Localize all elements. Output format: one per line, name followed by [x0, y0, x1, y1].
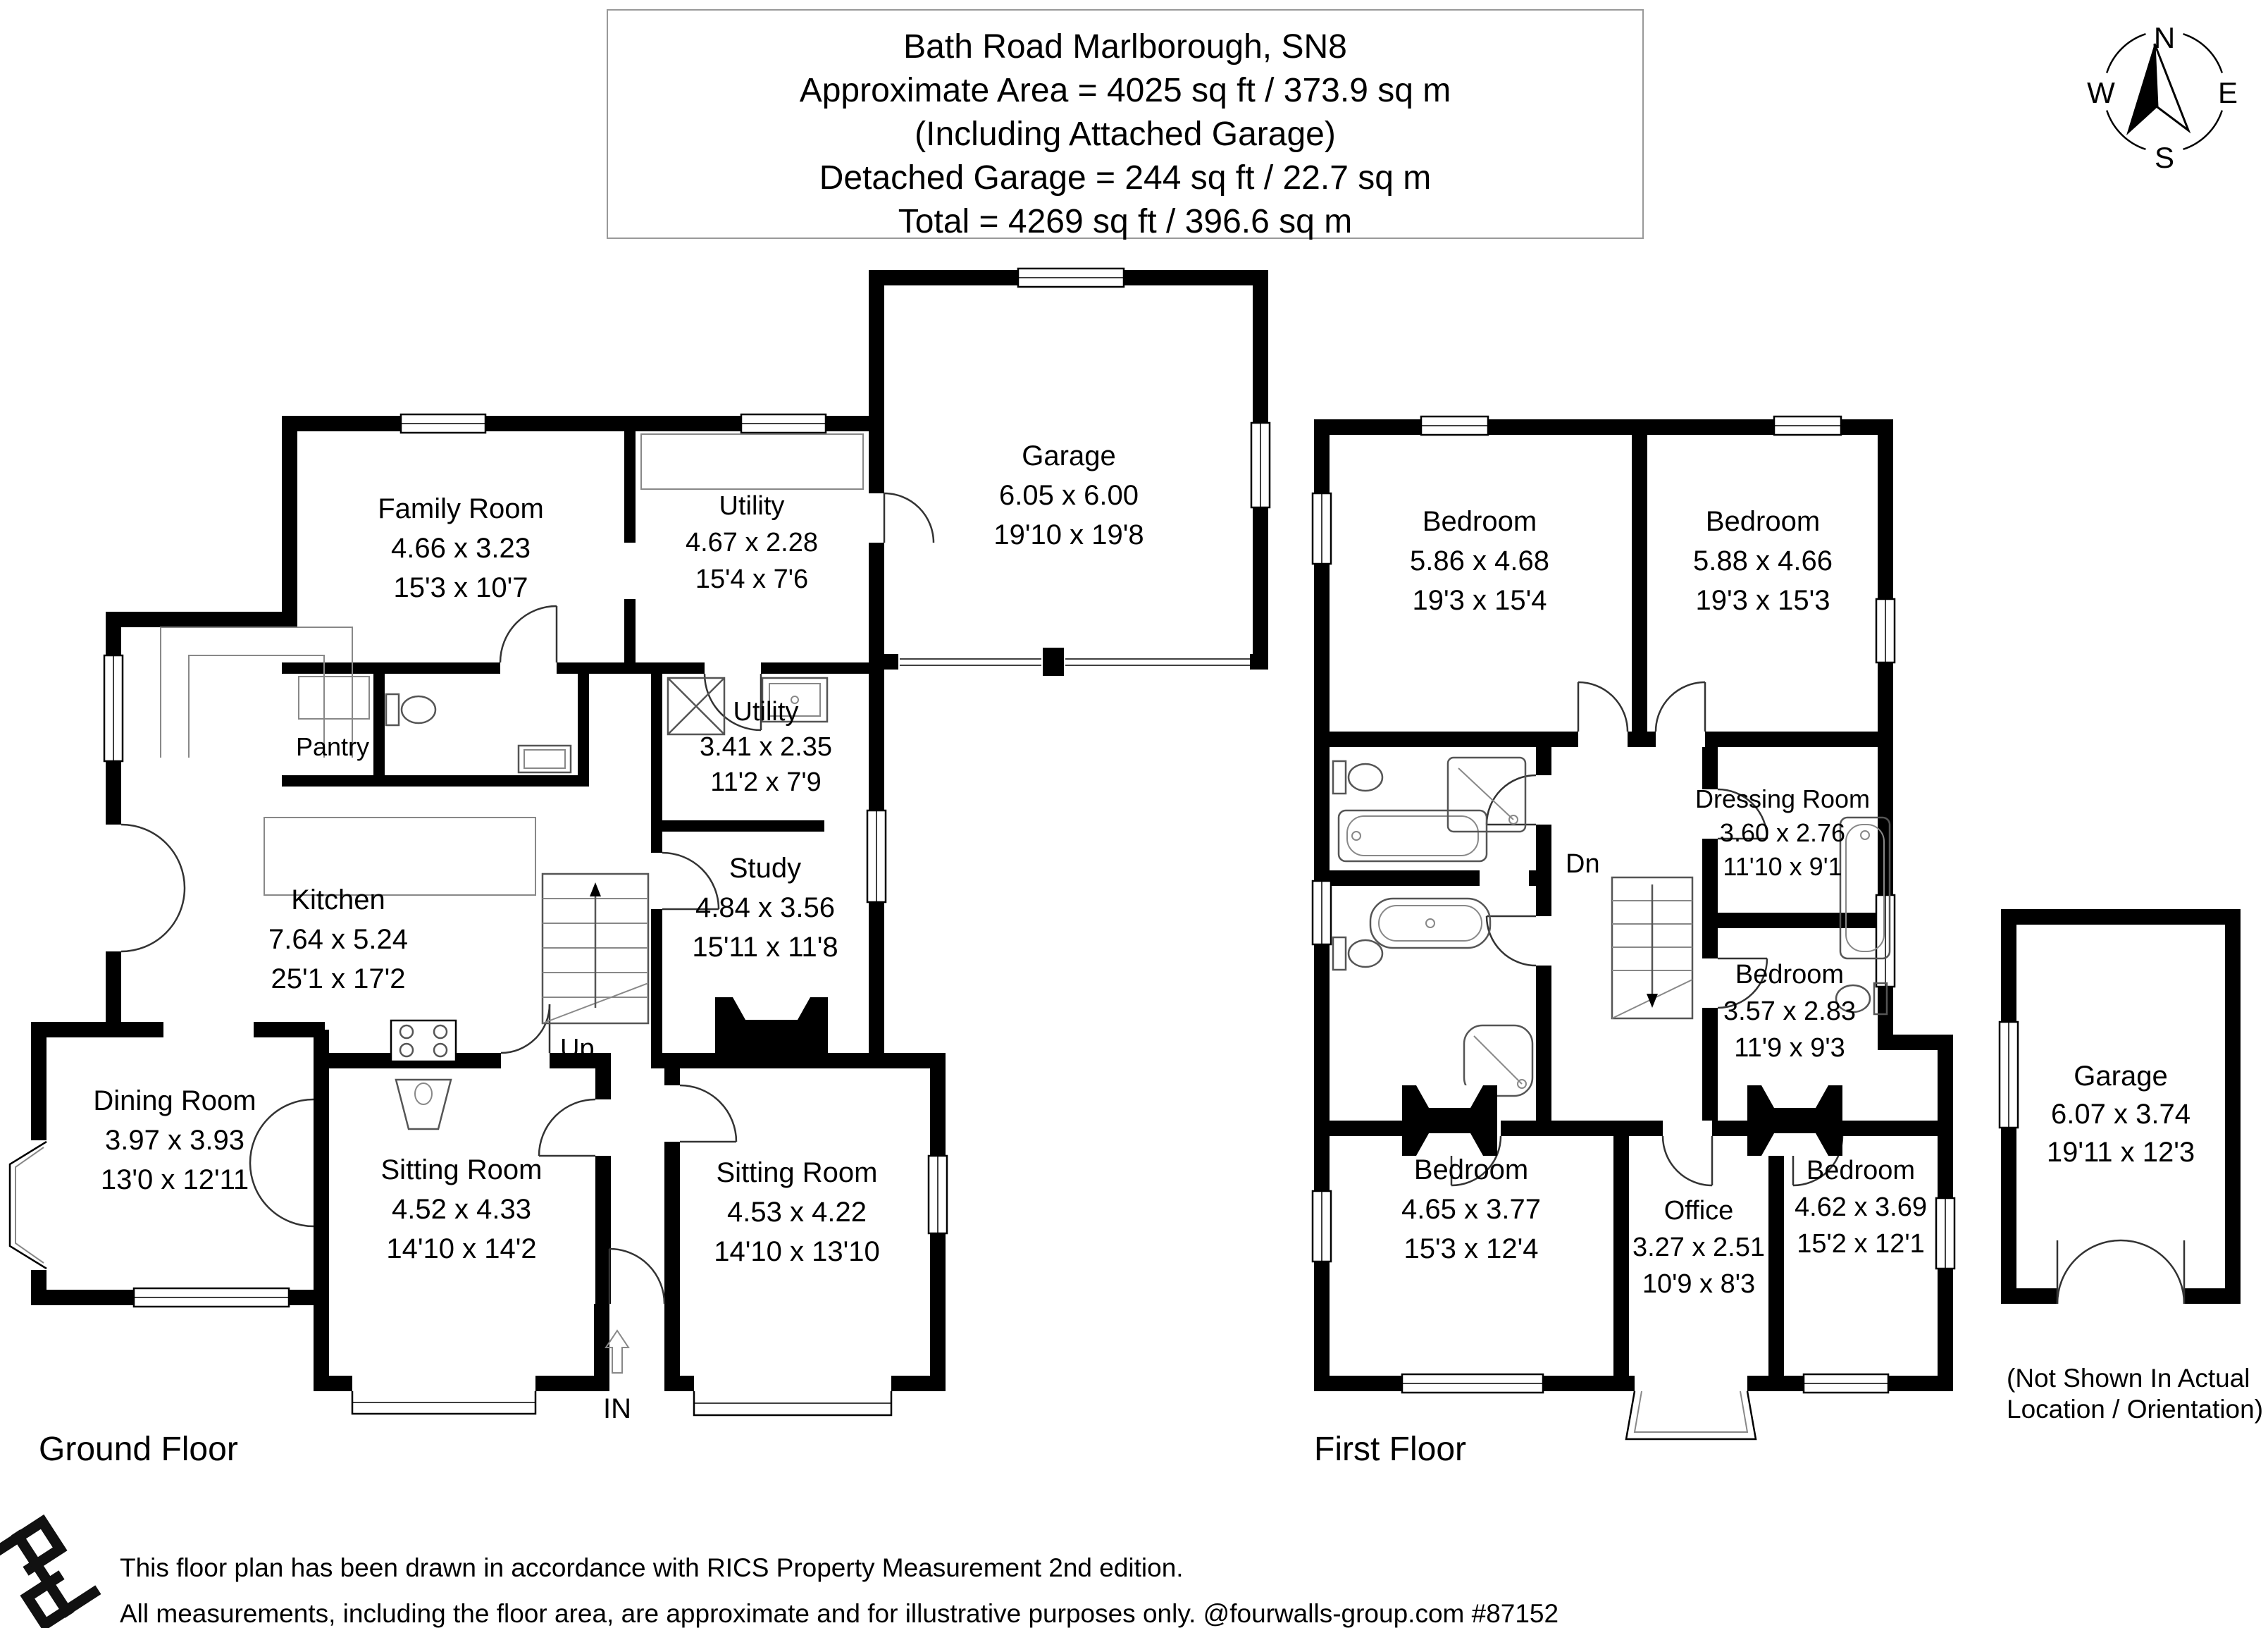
fireplace-icon: [1402, 1085, 1497, 1156]
stairs-up-label: Up: [560, 1034, 595, 1063]
window-icon: [104, 655, 123, 761]
window-icon: [1251, 423, 1270, 507]
detached-garage-note-line1: (Not Shown In Actual: [2007, 1364, 2250, 1393]
compass-north-label: N: [2154, 21, 2175, 54]
window-icon: [1774, 417, 1841, 435]
room-label-bedroom4-name: Bedroom: [1414, 1154, 1528, 1185]
room-label-kitchen-name: Kitchen: [291, 884, 385, 915]
room-label-kitchen-imperial: 25'1 x 17'2: [271, 963, 406, 994]
room-label-family-metric: 4.66 x 3.23: [391, 533, 531, 564]
fourwalls-logo-icon: [0, 1512, 101, 1628]
room-label-study-metric: 4.84 x 3.56: [695, 892, 835, 923]
bay-window-icon: [1626, 1376, 1756, 1439]
room-label-bedroom4-imperial: 15'3 x 12'4: [1404, 1233, 1539, 1264]
window-icon: [134, 1288, 289, 1307]
ground-floor-plan: Family Room 4.66 x 3.23 15'3 x 10'7 Util…: [10, 269, 1270, 1468]
garage-door-icon: [898, 648, 1250, 676]
room-label-dressing-name: Dressing Room: [1695, 784, 1870, 813]
room-label-utility1-name: Utility: [719, 491, 785, 521]
compass-arc-nw: [2107, 34, 2145, 73]
room-label-pantry: Pantry: [296, 732, 369, 761]
compass-arc-ne: [2183, 34, 2222, 73]
room-label-garage-imperial: 19'10 x 19'8: [993, 519, 1144, 550]
room-label-utility2-metric: 3.41 x 2.35: [700, 732, 832, 762]
room-label-detached-garage-name: Garage: [2074, 1061, 2167, 1092]
compass-west-label: W: [2087, 76, 2115, 109]
room-label-utility1-metric: 4.67 x 2.28: [686, 528, 818, 557]
entrance-label: IN: [603, 1393, 631, 1424]
first-floor-title: First Floor: [1314, 1431, 1466, 1468]
room-label-sitting2-metric: 4.53 x 4.22: [727, 1197, 867, 1228]
title-address: Bath Road Marlborough, SN8: [903, 28, 1347, 66]
room-label-detached-garage-metric: 6.07 x 3.74: [2051, 1099, 2190, 1130]
bay-window-icon: [694, 1376, 891, 1415]
room-label-utility2-name: Utility: [733, 697, 799, 727]
cooker-hood-icon: [396, 1080, 451, 1129]
ground-floor-walls: [31, 270, 1268, 1391]
room-label-sitting2-imperial: 14'10 x 13'10: [714, 1236, 879, 1267]
room-label-family-imperial: 15'3 x 10'7: [394, 572, 528, 603]
footer-disclaimer-line2: All measurements, including the floor ar…: [120, 1599, 1559, 1628]
room-label-office-name: Office: [1664, 1196, 1734, 1226]
basin-icon: [519, 746, 571, 772]
room-label-sitting1-imperial: 14'10 x 14'2: [386, 1233, 536, 1264]
room-label-dressing-metric: 3.60 x 2.76: [1720, 818, 1845, 847]
footer: This floor plan has been drawn in accord…: [0, 1512, 1559, 1628]
bay-window-icon: [10, 1140, 47, 1270]
title-including-note: (Including Attached Garage): [915, 116, 1336, 153]
room-label-dressing-imperial: 11'10 x 9'1: [1723, 852, 1842, 881]
ground-floor-labels: Family Room 4.66 x 3.23 15'3 x 10'7 Util…: [39, 440, 1144, 1468]
window-icon: [1876, 895, 1895, 987]
kitchen-island: [264, 818, 535, 895]
window-icon: [741, 414, 826, 433]
compass-south-label: S: [2155, 141, 2174, 174]
detached-garage-note-line2: Location / Orientation): [2007, 1395, 2263, 1424]
room-label-study-imperial: 15'11 x 11'8: [692, 932, 838, 963]
toilet-icon: [1333, 937, 1382, 970]
first-floor-plan: Bedroom 5.86 x 4.68 19'3 x 15'4 Bedroom …: [1313, 417, 1954, 1468]
room-label-sitting2-name: Sitting Room: [717, 1157, 878, 1188]
window-icon: [1018, 269, 1124, 287]
room-label-bedroom2-name: Bedroom: [1706, 506, 1820, 537]
compass-needle-dark: [2126, 44, 2157, 135]
compass-needle-light: [2155, 44, 2188, 130]
room-label-detached-garage-imperial: 19'11 x 12'3: [2047, 1137, 2195, 1168]
title-approx-area: Approximate Area = 4025 sq ft / 373.9 sq…: [800, 72, 1451, 109]
detached-garage-plan: Garage 6.07 x 3.74 19'11 x 12'3 (Not Sho…: [2000, 909, 2263, 1424]
window-icon: [1313, 493, 1331, 564]
window-icon: [1421, 417, 1488, 435]
hob-icon: [391, 1020, 456, 1061]
footer-disclaimer-line1: This floor plan has been drawn in accord…: [120, 1553, 1184, 1582]
room-label-bedroom5-imperial: 15'2 x 12'1: [1797, 1229, 1924, 1259]
fireplace-icon: [715, 997, 828, 1053]
room-label-bedroom3-name: Bedroom: [1735, 960, 1844, 989]
window-icon: [867, 810, 886, 902]
title-total-area: Total = 4269 sq ft / 396.6 sq m: [898, 203, 1352, 240]
room-label-dining-metric: 3.97 x 3.93: [105, 1125, 244, 1156]
room-label-garage-name: Garage: [1022, 440, 1115, 471]
window-icon: [929, 1156, 947, 1233]
window-icon: [2000, 1022, 2018, 1128]
toilet-icon: [1333, 761, 1382, 794]
room-label-garage-metric: 6.05 x 6.00: [999, 480, 1139, 511]
room-label-bedroom3-metric: 3.57 x 2.83: [1723, 997, 1856, 1026]
detached-garage-doors: [2057, 1240, 2184, 1304]
compass-icon: N E S W: [2087, 21, 2238, 174]
room-label-office-imperial: 10'9 x 8'3: [1642, 1269, 1755, 1299]
room-label-kitchen-metric: 7.64 x 5.24: [268, 924, 408, 955]
room-label-dining-name: Dining Room: [93, 1085, 256, 1116]
room-label-bedroom1-metric: 5.86 x 4.68: [1410, 545, 1549, 576]
toilet-icon: [386, 694, 435, 725]
window-icon: [1313, 881, 1331, 944]
room-label-study-name: Study: [729, 853, 801, 884]
room-label-office-metric: 3.27 x 2.51: [1632, 1233, 1765, 1262]
room-label-bedroom1-name: Bedroom: [1423, 506, 1537, 537]
room-label-bedroom2-metric: 5.88 x 4.66: [1693, 545, 1833, 576]
window-icon: [1804, 1374, 1888, 1393]
room-label-bedroom2-imperial: 19'3 x 15'3: [1696, 585, 1830, 616]
first-floor-fixtures: [1333, 758, 1890, 1156]
window-icon: [401, 414, 485, 433]
room-label-dining-imperial: 13'0 x 12'11: [101, 1164, 249, 1195]
ground-floor-title: Ground Floor: [39, 1431, 238, 1468]
room-label-family-name: Family Room: [378, 493, 544, 524]
title-detached-area: Detached Garage = 244 sq ft / 22.7 sq m: [819, 159, 1432, 197]
utility-counter: [641, 434, 863, 489]
compass-east-label: E: [2218, 76, 2238, 109]
room-label-bedroom3-imperial: 11'9 x 9'3: [1734, 1033, 1845, 1063]
window-icon: [1876, 599, 1895, 662]
room-label-utility1-imperial: 15'4 x 7'6: [695, 565, 808, 594]
window-icon: [1402, 1374, 1543, 1393]
room-label-utility2-imperial: 11'2 x 7'9: [710, 767, 821, 797]
stairs-up: [543, 874, 648, 1023]
window-icon: [1313, 1191, 1331, 1262]
room-label-bedroom5-metric: 4.62 x 3.69: [1795, 1192, 1927, 1222]
stairs-down-label: Dn: [1566, 849, 1600, 879]
stairs-down: [1612, 877, 1692, 1018]
room-label-bedroom4-metric: 4.65 x 3.77: [1401, 1194, 1541, 1225]
bay-window-icon: [352, 1376, 535, 1414]
window-icon: [1936, 1198, 1954, 1269]
room-label-sitting1-name: Sitting Room: [381, 1154, 543, 1185]
room-label-sitting1-metric: 4.52 x 4.33: [392, 1194, 531, 1225]
fireplace-icon: [1747, 1085, 1842, 1156]
bath-icon: [1339, 810, 1487, 861]
room-label-bedroom1-imperial: 19'3 x 15'4: [1413, 585, 1547, 616]
bath-icon: [1370, 899, 1490, 948]
pantry-shelf: [299, 677, 369, 719]
title-box: Bath Road Marlborough, SN8 Approximate A…: [607, 10, 1643, 240]
room-label-bedroom5-name: Bedroom: [1807, 1156, 1915, 1185]
